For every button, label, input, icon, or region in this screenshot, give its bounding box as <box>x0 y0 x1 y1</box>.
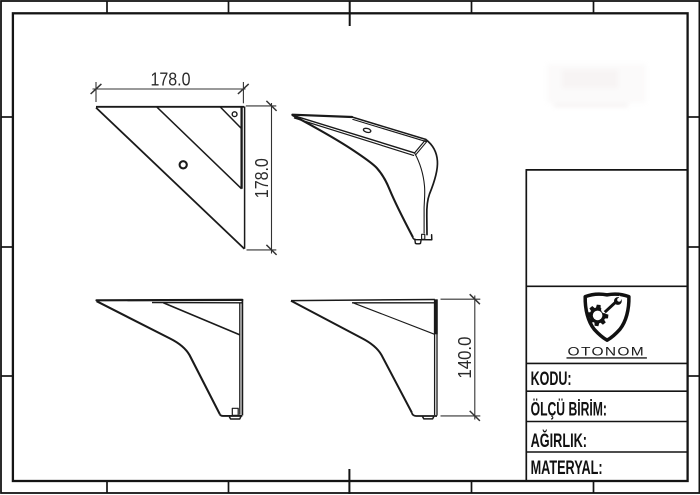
svg-text:KODU:: KODU: <box>531 368 572 390</box>
svg-text:AĞIRLIK:: AĞIRLIK: <box>531 428 587 452</box>
svg-text:ÖLÇÜ BİRİM:: ÖLÇÜ BİRİM: <box>531 398 607 421</box>
svg-text:140.0: 140.0 <box>454 337 475 379</box>
svg-text:MATERYAL:: MATERYAL: <box>531 457 603 479</box>
svg-text:178.0: 178.0 <box>251 158 272 198</box>
svg-text:178.0: 178.0 <box>151 68 191 89</box>
svg-text:OTONOM: OTONOM <box>568 344 646 358</box>
